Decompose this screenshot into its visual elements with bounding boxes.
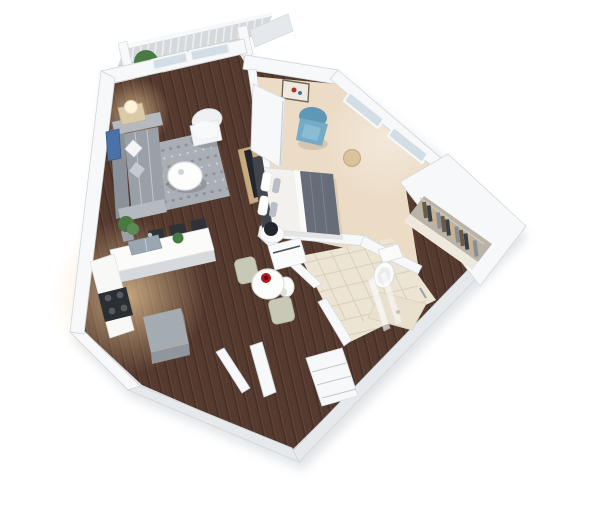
armchair-cushion <box>193 121 217 139</box>
red-bowl-center <box>264 276 268 280</box>
wall-art-blue <box>106 129 121 161</box>
art-blue-detail <box>298 91 302 95</box>
coffee-table-decor <box>178 169 184 175</box>
table-lamp <box>125 101 138 114</box>
burner-2 <box>117 292 124 299</box>
burner-3 <box>109 308 116 315</box>
round-pouf <box>344 150 361 167</box>
plant-leaves-2 <box>127 223 139 235</box>
dining-chair-2 <box>268 296 296 326</box>
black-lamp <box>264 222 278 236</box>
burner-1 <box>105 295 112 302</box>
coffee-table-top <box>168 162 202 190</box>
faucet <box>148 233 152 237</box>
art-red-detail <box>292 88 297 93</box>
shower-drain <box>396 310 400 314</box>
blue-accent-chair <box>296 105 328 150</box>
counter-plant <box>173 233 184 244</box>
dining-chair-2-seat <box>268 296 296 326</box>
floor-plan-page <box>0 0 600 510</box>
burner-4 <box>121 305 128 312</box>
floor-plan-render <box>0 0 600 510</box>
